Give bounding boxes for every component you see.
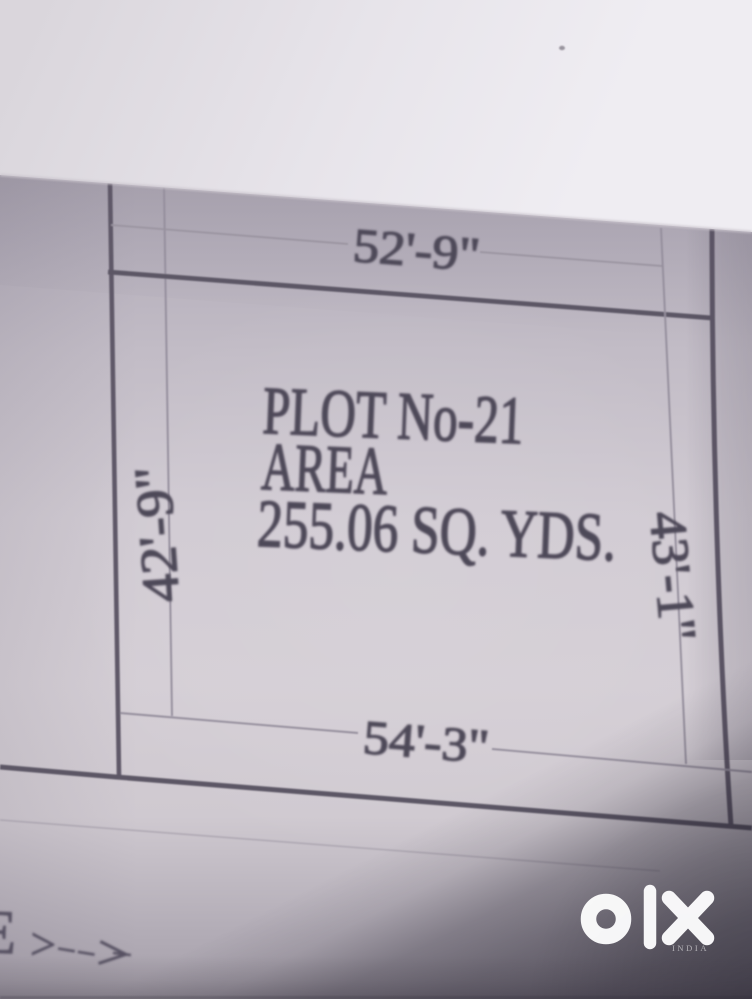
svg-text:52'-9": 52'-9": [351, 219, 482, 282]
svg-text:INDIA: INDIA: [672, 943, 709, 953]
